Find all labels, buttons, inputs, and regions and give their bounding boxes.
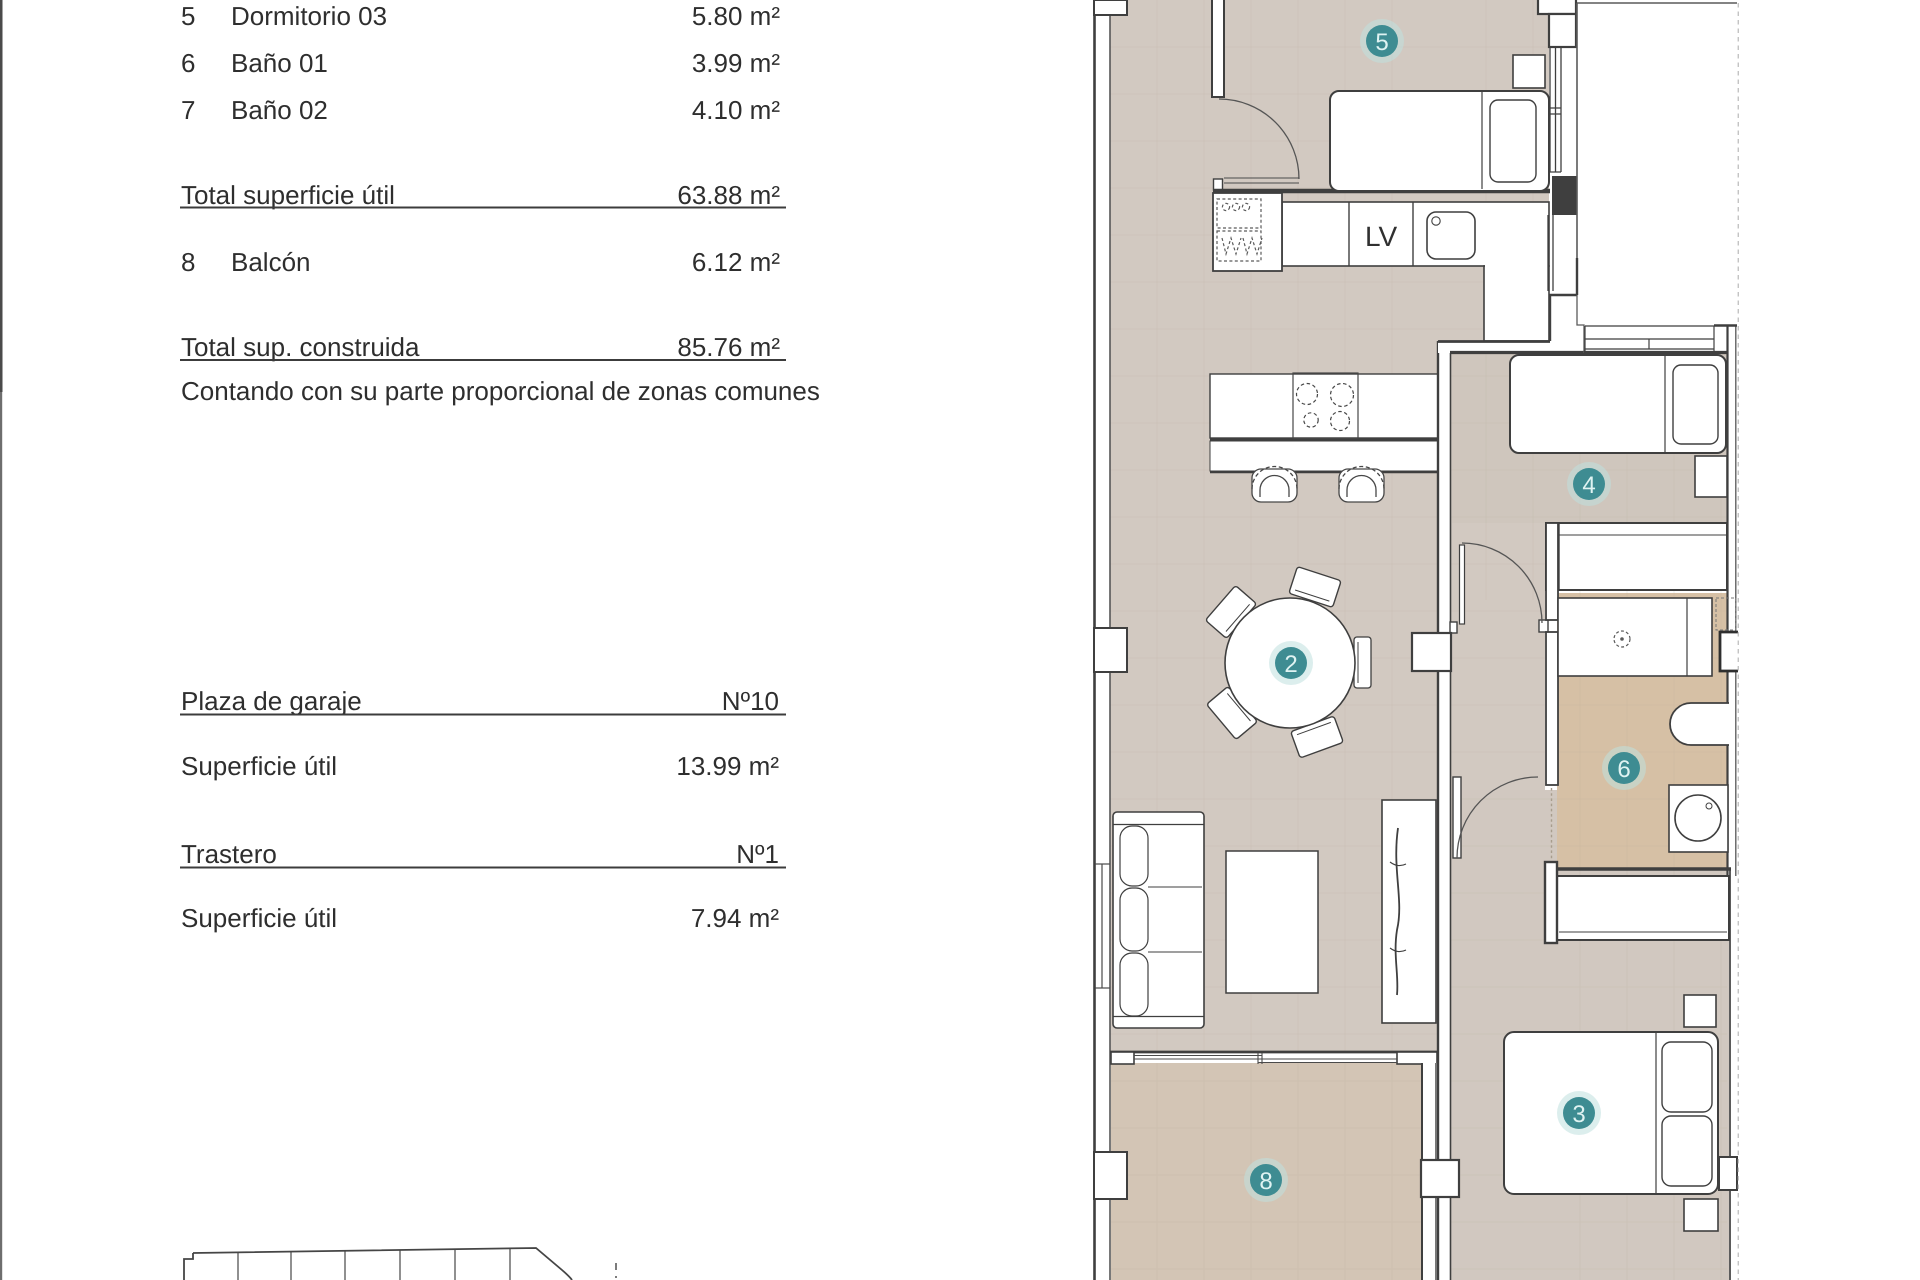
svg-text:7: 7 bbox=[181, 95, 195, 125]
svg-text:6: 6 bbox=[181, 48, 195, 78]
svg-text:Nº10: Nº10 bbox=[722, 686, 779, 716]
svg-text:Total sup. construida: Total sup. construida bbox=[181, 332, 420, 362]
svg-text:5.80 m²: 5.80 m² bbox=[692, 1, 780, 31]
svg-text:Plaza de garaje: Plaza de garaje bbox=[181, 686, 362, 716]
svg-text:3: 3 bbox=[1572, 1101, 1585, 1128]
svg-text:3.99 m²: 3.99 m² bbox=[692, 48, 780, 78]
svg-text:Balcón: Balcón bbox=[231, 247, 311, 277]
svg-text:Baño 02: Baño 02 bbox=[231, 95, 328, 125]
svg-text:8: 8 bbox=[181, 247, 195, 277]
svg-text:LV: LV bbox=[1365, 221, 1397, 252]
svg-text:Superficie útil: Superficie útil bbox=[181, 751, 337, 781]
svg-text:Superficie útil: Superficie útil bbox=[181, 903, 337, 933]
svg-text:13.99 m²: 13.99 m² bbox=[676, 751, 779, 781]
svg-text:Dormitorio 03: Dormitorio 03 bbox=[231, 1, 387, 31]
svg-text:5: 5 bbox=[181, 1, 195, 31]
svg-text:63.88 m²: 63.88 m² bbox=[677, 180, 780, 210]
svg-text:8: 8 bbox=[1259, 1168, 1272, 1195]
svg-text:6: 6 bbox=[1617, 756, 1630, 783]
svg-text:5: 5 bbox=[1375, 29, 1388, 56]
svg-text:Baño 01: Baño 01 bbox=[231, 48, 328, 78]
svg-text:Total superficie útil: Total superficie útil bbox=[181, 180, 395, 210]
svg-text:85.76 m²: 85.76 m² bbox=[677, 332, 780, 362]
svg-text:4.10 m²: 4.10 m² bbox=[692, 95, 780, 125]
svg-text:Contando con su parte proporci: Contando con su parte proporcional de zo… bbox=[181, 376, 820, 406]
svg-text:4: 4 bbox=[1582, 472, 1595, 499]
svg-text:6.12 m²: 6.12 m² bbox=[692, 247, 780, 277]
svg-text:Trastero: Trastero bbox=[181, 839, 277, 869]
svg-text:Nº1: Nº1 bbox=[736, 839, 779, 869]
svg-text:2: 2 bbox=[1284, 651, 1297, 678]
svg-text:7.94 m²: 7.94 m² bbox=[691, 903, 779, 933]
